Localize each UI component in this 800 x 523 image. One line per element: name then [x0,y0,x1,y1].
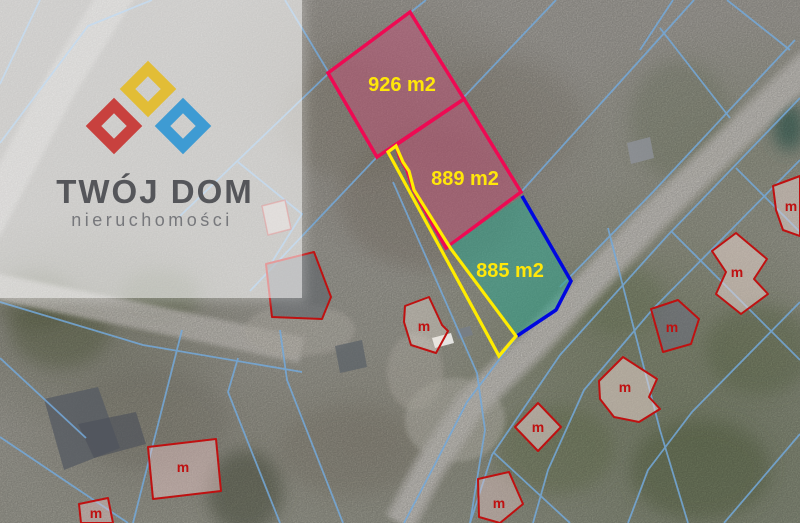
building-marker: m [532,419,544,435]
shed [335,340,367,373]
plot-926-area-label: 926 m2 [368,74,436,96]
building-marker: m [177,459,189,475]
building-marker: m [418,318,430,334]
agency-tagline: nieruchomości [71,210,233,230]
building-marker: m [493,495,505,511]
building-marker: m [731,264,743,280]
agency-watermark-panel: TWÓJ DOM nieruchomości [0,0,302,298]
agency-name: TWÓJ DOM [56,173,253,210]
logo-diamond-blue-icon [162,105,203,146]
plot-885-area-label: 885 m2 [476,260,544,282]
building-marker: m [785,198,797,214]
logo-diamond-red-icon [93,105,134,146]
building-marker: m [666,319,678,335]
building-marker: m [619,379,631,395]
plot-889-area-label: 889 m2 [431,168,499,190]
listing-map-image: m m m m m m m m m 926 m2 889 m2 885 m2 [0,0,800,523]
agency-logo: TWÓJ DOM nieruchomości [0,0,302,298]
building-marker: m [90,505,102,521]
logo-diamond-yellow-icon [127,68,168,109]
